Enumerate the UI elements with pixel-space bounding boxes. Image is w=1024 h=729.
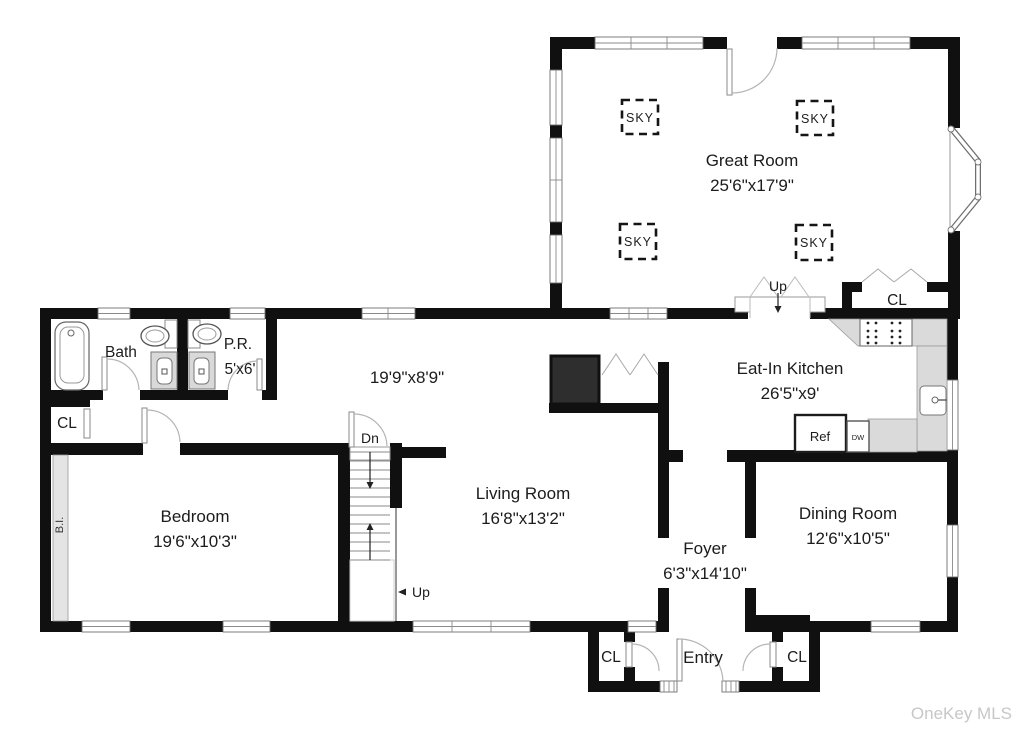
stove — [860, 319, 912, 346]
skylight-label: SKY — [626, 111, 654, 125]
kitchen-sink — [920, 386, 947, 415]
powder-room-sink — [188, 320, 221, 348]
great-room-dims: 25'6"x17'9" — [710, 176, 794, 195]
skylight-label: SKY — [800, 236, 828, 250]
built-in-label: B.I. — [54, 517, 66, 534]
floor-plan-drawing: Great Room 25'6"x17'9" SKY SKY SKY SKY U… — [0, 0, 1024, 729]
dining-room-label: Dining Room — [799, 504, 897, 523]
refrigerator-label: Ref — [810, 429, 831, 444]
sidelight-window — [660, 681, 677, 692]
bath-closet-door — [84, 409, 90, 438]
window — [628, 621, 656, 632]
sidelight-window — [722, 681, 739, 692]
closet-label-great-room: CL — [887, 292, 907, 309]
hall-closet-bifold-doors — [602, 354, 658, 375]
great-room-closet-bifold-doors — [862, 269, 927, 282]
window — [223, 621, 270, 632]
foyer-dims: 6'3"x14'10" — [663, 564, 747, 583]
window — [550, 138, 562, 222]
closet-label-entry-right: CL — [787, 649, 807, 666]
window — [98, 308, 130, 319]
entry-closet-right-door — [743, 642, 776, 671]
watermark: OneKey MLS — [911, 704, 1012, 723]
living-room-dims: 16'8"x13'2" — [481, 509, 565, 528]
powder-room-dims: 5'x6' — [225, 361, 256, 378]
powder-room-toilet — [189, 352, 215, 389]
closet-label-bath: CL — [57, 415, 77, 432]
bath-door — [102, 357, 139, 390]
window — [550, 70, 562, 125]
window — [802, 37, 910, 49]
bath-toilet — [151, 352, 177, 389]
entry-closet-left-door — [626, 642, 659, 671]
down-label-stairs: Dn — [361, 430, 379, 446]
window — [947, 380, 958, 450]
window — [550, 235, 562, 283]
bay-window — [948, 126, 981, 233]
up-arrow — [398, 589, 406, 596]
foyer-label: Foyer — [683, 539, 727, 558]
kitchen-dims: 26'5"x9' — [761, 384, 820, 403]
bath-sink — [141, 320, 177, 348]
window — [610, 308, 667, 319]
skylight-label: SKY — [801, 112, 829, 126]
bathtub — [55, 322, 89, 390]
skylight-label: SKY — [624, 235, 652, 249]
window — [413, 621, 530, 632]
window — [595, 37, 703, 49]
bath-label: Bath — [105, 344, 137, 361]
kitchen-label: Eat-In Kitchen — [737, 359, 844, 378]
window — [871, 621, 920, 632]
bedroom-dims: 19'6"x10'3" — [153, 532, 237, 551]
fireplace — [551, 356, 599, 404]
living-room-label: Living Room — [476, 484, 571, 503]
closet-label-entry-left: CL — [601, 649, 621, 666]
window — [230, 308, 265, 319]
great-room-label: Great Room — [706, 151, 799, 170]
floor-plan-page: Great Room 25'6"x17'9" SKY SKY SKY SKY U… — [0, 0, 1024, 729]
built-in-cabinet — [53, 455, 68, 621]
powder-room-label: P.R. — [224, 336, 252, 353]
up-label-great-room: Up — [769, 278, 787, 294]
hall-dims: 19'9"x8'9" — [370, 368, 444, 387]
bedroom-door — [142, 408, 180, 443]
up-label-stairs: Up — [412, 584, 430, 600]
entry-label: Entry — [683, 648, 723, 667]
window — [82, 621, 130, 632]
window — [947, 525, 958, 577]
great-room-door — [727, 48, 777, 95]
window — [362, 308, 415, 319]
dishwasher-label: DW — [852, 433, 865, 442]
dining-room-dims: 12'6"x10'5" — [806, 529, 890, 548]
bedroom-label: Bedroom — [161, 507, 230, 526]
